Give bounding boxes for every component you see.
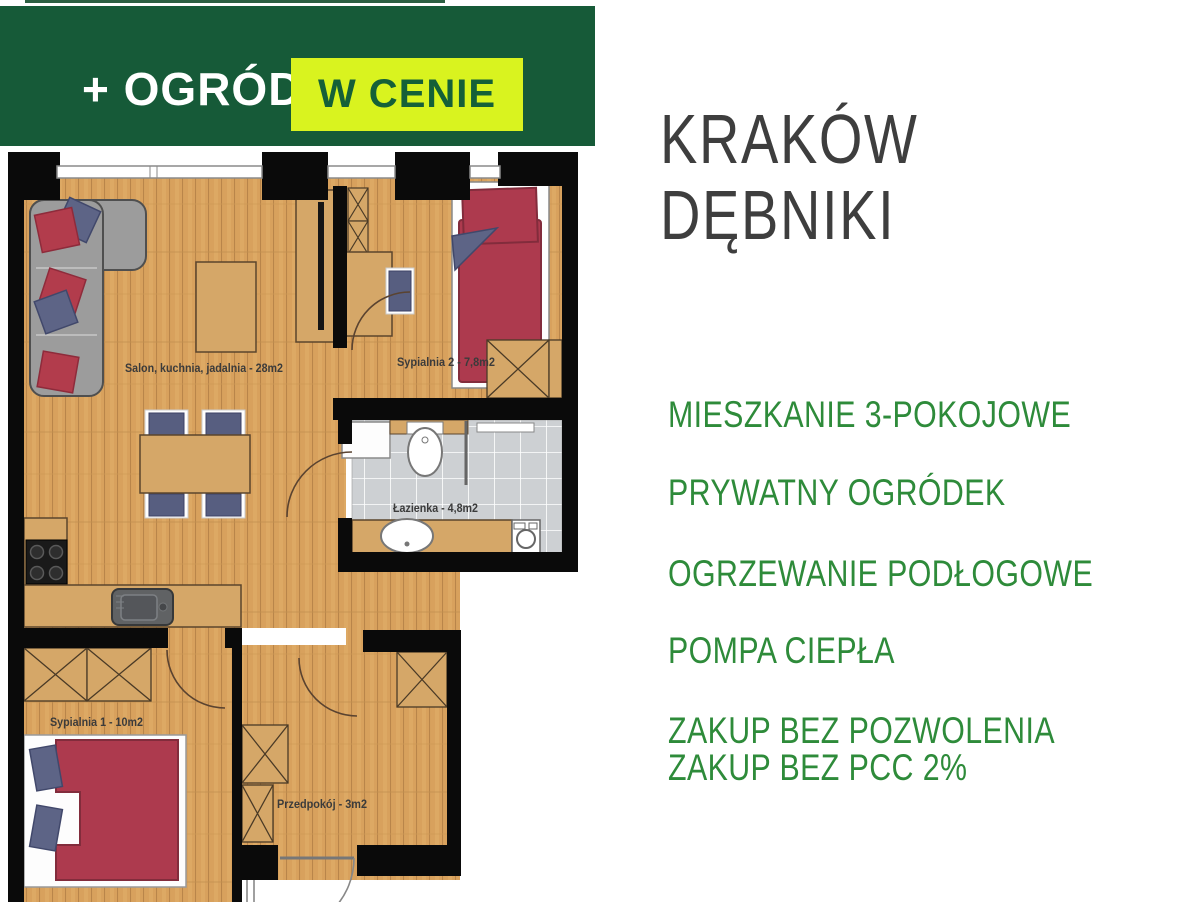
tv bbox=[318, 202, 324, 330]
wardrobe-small bbox=[348, 188, 368, 254]
dining-table bbox=[140, 435, 250, 493]
window bbox=[57, 166, 262, 178]
kitchen-sink bbox=[112, 589, 173, 625]
room-label-bedroom1: Sypialnia 1 - 10m2 bbox=[50, 715, 143, 729]
entry-sidelight bbox=[247, 880, 254, 902]
feature-item-no-pcc: ZAKUP BEZ PCC 2% bbox=[668, 749, 967, 788]
promo-banner: + OGRÓD W CENIE bbox=[0, 6, 595, 146]
feature-item-garden: PRYWATNY OGRÓDEK bbox=[668, 474, 1006, 513]
district-title: DĘBNIKI bbox=[660, 180, 895, 250]
desk-chair bbox=[386, 268, 414, 314]
city-title: KRAKÓW bbox=[660, 104, 919, 174]
top-divider-line bbox=[25, 0, 445, 3]
floorplan: Salon, kuchnia, jadalnia - 28m2 Sypialni… bbox=[0, 140, 600, 902]
dining-chair bbox=[202, 410, 245, 437]
sofa-pillow-red bbox=[37, 351, 79, 393]
toilet bbox=[407, 422, 443, 476]
room-label-bathroom: Łazienka - 4,8m2 bbox=[393, 501, 478, 515]
banner-highlight-badge: W CENIE bbox=[291, 58, 523, 131]
banner-garden-text: + OGRÓD bbox=[82, 62, 302, 116]
real-estate-poster: + OGRÓD W CENIE KRAKÓW DĘBNIKI MIESZKANI… bbox=[0, 0, 1203, 902]
room-label-living: Salon, kuchnia, jadalnia - 28m2 bbox=[125, 361, 283, 375]
coffee-table bbox=[196, 262, 256, 352]
feature-item-no-permit: ZAKUP BEZ POZWOLENIA bbox=[668, 712, 1055, 751]
room-label-hallway: Przedpokój - 3m2 bbox=[277, 797, 367, 811]
wardrobe-bedroom2 bbox=[487, 340, 562, 398]
dining-chair bbox=[145, 491, 188, 518]
feature-item-heat-pump: POMPA CIEPŁA bbox=[668, 632, 895, 671]
window bbox=[328, 166, 395, 178]
window bbox=[470, 166, 500, 178]
room-label-bedroom2: Sypialnia 2 - 7,8m2 bbox=[397, 355, 495, 369]
desk bbox=[346, 252, 392, 336]
feature-item-heating: OGRZEWANIE PODŁOGOWE bbox=[668, 555, 1093, 594]
washing-machine bbox=[512, 520, 540, 553]
banner-highlight-text: W CENIE bbox=[318, 72, 496, 117]
dining-chair bbox=[145, 410, 188, 437]
wardrobe-bedroom1 bbox=[24, 648, 151, 701]
floorplan-svg: Salon, kuchnia, jadalnia - 28m2 Sypialni… bbox=[0, 140, 600, 902]
feature-item-rooms: MIESZKANIE 3-POKOJOWE bbox=[668, 396, 1071, 435]
sofa-pillow-red bbox=[34, 207, 79, 252]
double-bed bbox=[24, 735, 186, 887]
dining-chair bbox=[202, 491, 245, 518]
tv-cabinet bbox=[296, 190, 334, 342]
bathroom-shelf-right bbox=[477, 423, 534, 432]
bathroom-sink bbox=[381, 519, 433, 553]
